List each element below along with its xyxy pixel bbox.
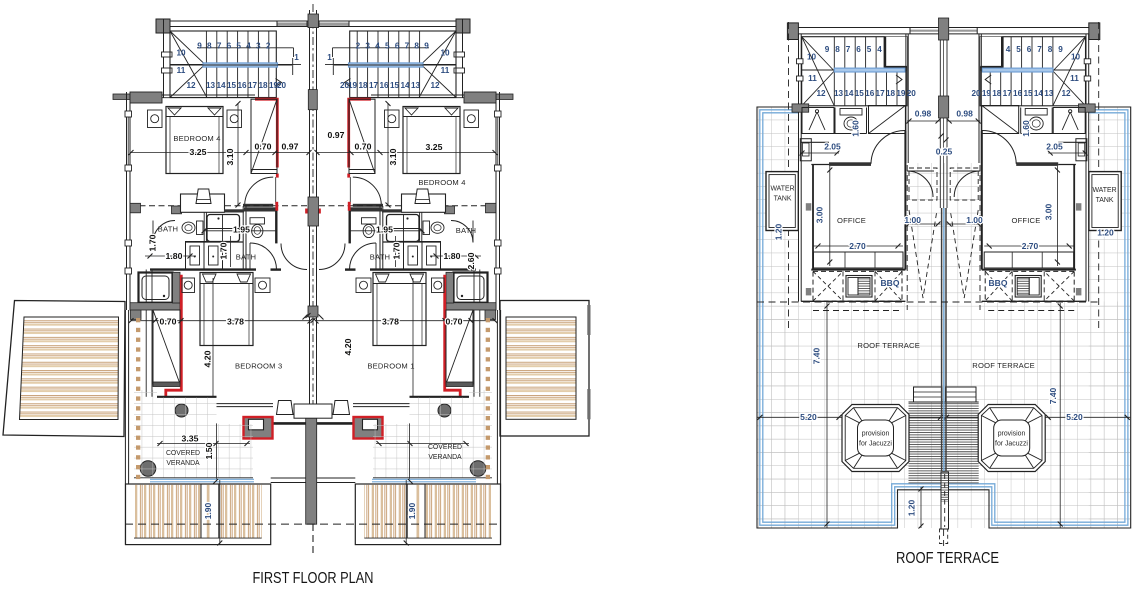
svg-text:5: 5: [385, 42, 390, 51]
svg-text:2.70: 2.70: [849, 241, 866, 251]
svg-text:3.10: 3.10: [225, 148, 235, 165]
svg-text:12: 12: [1061, 89, 1071, 98]
svg-text:TANK: TANK: [774, 196, 792, 203]
svg-text:10: 10: [176, 49, 186, 58]
svg-text:7.40: 7.40: [812, 347, 822, 364]
svg-text:0.97: 0.97: [282, 141, 299, 151]
svg-text:1.90: 1.90: [203, 502, 213, 519]
svg-text:3.25: 3.25: [426, 142, 443, 152]
svg-text:5: 5: [867, 45, 872, 54]
svg-text:18: 18: [358, 81, 368, 90]
svg-text:1.20: 1.20: [1097, 228, 1114, 238]
svg-text:10: 10: [440, 49, 450, 58]
svg-text:14: 14: [1034, 89, 1044, 98]
svg-text:FIRST FLOOR PLAN: FIRST FLOOR PLAN: [253, 570, 374, 587]
svg-text:14: 14: [400, 81, 410, 90]
svg-text:3: 3: [365, 42, 370, 51]
svg-text:ROOF TERRACE: ROOF TERRACE: [896, 550, 999, 567]
svg-text:15: 15: [227, 81, 237, 90]
svg-text:16: 16: [379, 81, 389, 90]
svg-text:19: 19: [348, 81, 358, 90]
svg-text:7.40: 7.40: [1048, 387, 1058, 404]
svg-text:ROOF TERRACE: ROOF TERRACE: [972, 361, 1035, 370]
svg-text:7: 7: [846, 45, 851, 54]
svg-text:3: 3: [256, 42, 261, 51]
svg-text:4: 4: [375, 42, 380, 51]
svg-text:WATER: WATER: [770, 186, 794, 193]
svg-text:20: 20: [971, 89, 981, 98]
svg-text:2.70: 2.70: [1022, 241, 1039, 251]
svg-text:8: 8: [207, 42, 212, 51]
svg-text:2.05: 2.05: [824, 142, 841, 152]
svg-text:13: 13: [206, 81, 216, 90]
svg-text:17: 17: [1003, 89, 1013, 98]
svg-text:VERANDA: VERANDA: [428, 454, 462, 461]
svg-text:provision: provision: [862, 431, 890, 438]
svg-text:BATH: BATH: [456, 226, 477, 235]
svg-text:6: 6: [856, 45, 861, 54]
svg-text:10: 10: [807, 53, 817, 62]
svg-text:18: 18: [886, 89, 896, 98]
svg-text:TANK: TANK: [1096, 197, 1114, 204]
svg-text:16: 16: [865, 89, 875, 98]
svg-text:8: 8: [414, 42, 419, 51]
svg-text:7: 7: [405, 42, 410, 51]
svg-text:0.25: 0.25: [936, 147, 953, 157]
svg-text:20: 20: [907, 89, 917, 98]
svg-text:15: 15: [390, 81, 400, 90]
svg-text:provision: provision: [998, 431, 1026, 438]
svg-text:2.60: 2.60: [466, 252, 476, 269]
svg-text:9: 9: [197, 42, 202, 51]
svg-text:11: 11: [1070, 74, 1079, 83]
svg-text:18: 18: [258, 81, 268, 90]
svg-text:0.70: 0.70: [255, 141, 272, 151]
svg-text:15: 15: [855, 89, 865, 98]
svg-text:BEDROOM 3: BEDROOM 3: [235, 362, 282, 371]
svg-text:16: 16: [1013, 89, 1023, 98]
svg-text:1: 1: [294, 53, 299, 62]
svg-text:2.05: 2.05: [1046, 142, 1063, 152]
svg-text:2: 2: [266, 42, 271, 51]
svg-text:10: 10: [1071, 53, 1081, 62]
svg-text:11: 11: [441, 66, 450, 75]
svg-text:1.20: 1.20: [907, 499, 917, 516]
svg-text:4.20: 4.20: [343, 338, 353, 355]
svg-text:7: 7: [1037, 45, 1042, 54]
svg-text:12: 12: [816, 89, 826, 98]
svg-text:0.70: 0.70: [355, 141, 372, 151]
svg-text:9: 9: [424, 42, 429, 51]
svg-text:4: 4: [1006, 45, 1011, 54]
svg-text:14: 14: [216, 81, 226, 90]
svg-text:17: 17: [369, 81, 379, 90]
svg-text:3.25: 3.25: [190, 147, 207, 157]
svg-text:14: 14: [844, 89, 854, 98]
svg-text:ROOF TERRACE: ROOF TERRACE: [857, 341, 920, 350]
svg-text:18: 18: [992, 89, 1002, 98]
svg-text:BATH: BATH: [158, 225, 179, 234]
svg-text:3.78: 3.78: [227, 317, 244, 327]
svg-text:17: 17: [876, 89, 886, 98]
svg-text:3.10: 3.10: [388, 148, 398, 165]
svg-text:13: 13: [834, 89, 844, 98]
svg-text:3.78: 3.78: [382, 317, 399, 327]
svg-text:VERANDA: VERANDA: [166, 460, 200, 467]
svg-text:OFFICE: OFFICE: [837, 216, 866, 225]
svg-text:2: 2: [356, 42, 361, 51]
svg-text:1.80: 1.80: [166, 251, 183, 261]
svg-text:BEDROOM 4: BEDROOM 4: [418, 178, 465, 187]
svg-text:1.70: 1.70: [219, 242, 229, 259]
svg-text:6: 6: [1027, 45, 1032, 54]
svg-text:3.35: 3.35: [182, 434, 199, 444]
svg-text:for Jacuzzi: for Jacuzzi: [995, 441, 1028, 448]
svg-text:4: 4: [877, 45, 882, 54]
svg-text:1.70: 1.70: [392, 242, 402, 259]
svg-text:6: 6: [227, 42, 232, 51]
svg-text:5: 5: [1016, 45, 1021, 54]
svg-text:5.20: 5.20: [1066, 412, 1083, 422]
svg-text:OFFICE: OFFICE: [1011, 216, 1040, 225]
svg-text:1.50: 1.50: [204, 442, 214, 459]
svg-text:0.98: 0.98: [915, 109, 932, 119]
svg-text:1.95: 1.95: [233, 225, 250, 235]
svg-text:12: 12: [186, 81, 196, 90]
svg-text:BBQ: BBQ: [881, 278, 900, 288]
svg-text:0.70: 0.70: [446, 317, 463, 327]
svg-text:3.00: 3.00: [815, 206, 825, 223]
svg-text:4: 4: [246, 42, 251, 51]
svg-text:13: 13: [411, 81, 421, 90]
svg-text:20: 20: [277, 81, 287, 90]
svg-text:1.60: 1.60: [1021, 120, 1031, 137]
svg-text:BATH: BATH: [370, 253, 391, 262]
svg-text:7: 7: [217, 42, 222, 51]
svg-text:8: 8: [835, 45, 840, 54]
svg-text:13: 13: [1044, 89, 1054, 98]
svg-text:4.20: 4.20: [203, 350, 213, 367]
svg-text:BBQ: BBQ: [989, 278, 1008, 288]
svg-text:19: 19: [896, 89, 906, 98]
svg-text:11: 11: [177, 66, 186, 75]
svg-text:8: 8: [1048, 45, 1053, 54]
svg-text:5: 5: [236, 42, 241, 51]
svg-text:0.70: 0.70: [160, 317, 177, 327]
svg-text:BATH: BATH: [236, 253, 257, 262]
svg-text:1.20: 1.20: [774, 223, 784, 240]
svg-text:0.97: 0.97: [328, 130, 345, 140]
svg-text:3.00: 3.00: [1044, 203, 1054, 220]
svg-text:12: 12: [430, 81, 440, 90]
svg-text:15: 15: [1023, 89, 1033, 98]
svg-text:11: 11: [808, 74, 817, 83]
svg-text:9: 9: [825, 45, 830, 54]
svg-text:WATER: WATER: [1092, 187, 1116, 194]
svg-text:9: 9: [1058, 45, 1063, 54]
svg-text:1.80: 1.80: [444, 251, 461, 261]
svg-text:for Jacuzzi: for Jacuzzi: [859, 441, 892, 448]
svg-text:16: 16: [237, 81, 247, 90]
svg-text:1.90: 1.90: [407, 502, 417, 519]
svg-text:1: 1: [327, 53, 332, 62]
svg-text:COVERED: COVERED: [166, 450, 200, 457]
svg-text:1.95: 1.95: [376, 225, 393, 235]
svg-text:COVERED: COVERED: [428, 444, 462, 451]
svg-text:6: 6: [395, 42, 400, 51]
svg-text:17: 17: [248, 81, 258, 90]
svg-text:5.20: 5.20: [800, 412, 817, 422]
svg-text:0.98: 0.98: [956, 109, 973, 119]
svg-text:1.00: 1.00: [966, 215, 983, 225]
svg-text:BEDROOM 4: BEDROOM 4: [173, 134, 220, 143]
svg-text:1.70: 1.70: [148, 234, 158, 251]
svg-text:1.60: 1.60: [851, 120, 861, 137]
svg-text:BEDROOM 1: BEDROOM 1: [367, 362, 414, 371]
svg-text:1.00: 1.00: [904, 215, 921, 225]
svg-text:19: 19: [982, 89, 992, 98]
